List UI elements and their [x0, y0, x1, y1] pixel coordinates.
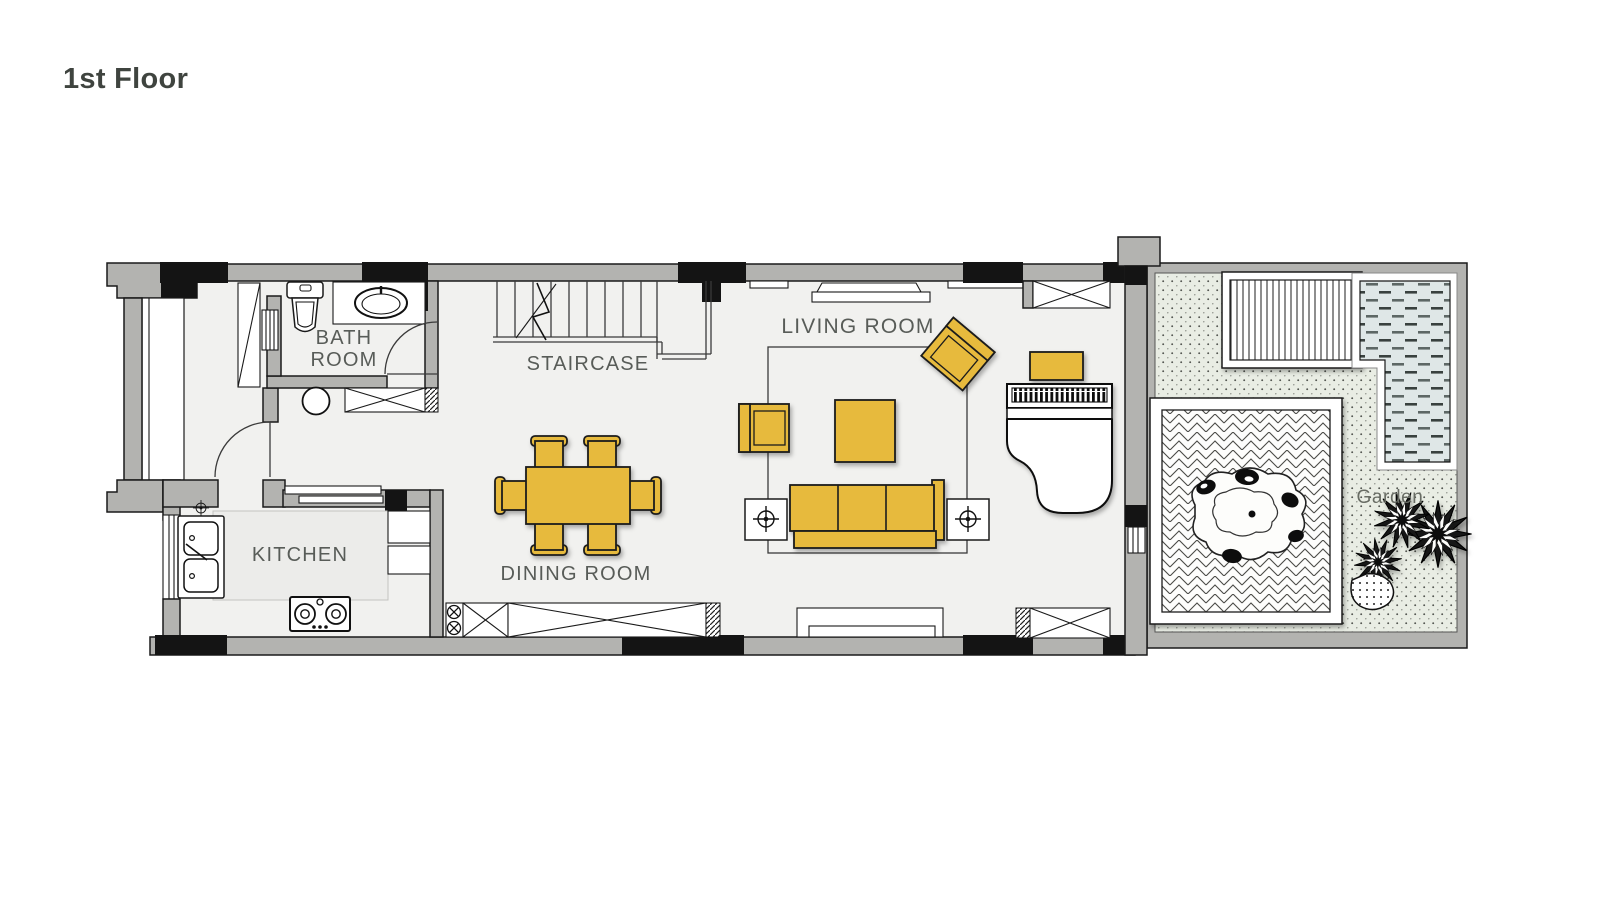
crossed-cabinet — [345, 388, 425, 412]
washer-icon — [303, 388, 330, 415]
garden-rock — [1351, 574, 1394, 610]
sofa — [790, 480, 944, 548]
side-table — [947, 499, 989, 540]
page-title: 1st Floor — [63, 63, 188, 95]
staircase-label: STAIRCASE — [527, 353, 650, 375]
west-pillar — [124, 298, 142, 480]
coffee-table — [835, 400, 895, 462]
deck — [1222, 272, 1362, 368]
bathroom-label-line1: BATH — [316, 327, 373, 349]
east-wall-cap — [1118, 237, 1160, 266]
kitchen-cabinet — [388, 511, 430, 543]
living-room-label: LIVING ROOM — [781, 315, 934, 338]
garden-gate — [1128, 527, 1145, 553]
tv-console-icon — [812, 283, 930, 302]
bathroom-south-wall — [267, 376, 387, 388]
patio — [1150, 398, 1342, 624]
floor-plan-page: 1st Floor — [0, 0, 1600, 910]
floorplan-canvas: 1st Floor — [0, 0, 1600, 910]
sideboard — [446, 603, 720, 637]
garden-label: Garden — [1357, 487, 1424, 508]
side-table — [745, 499, 787, 540]
dining-table — [526, 467, 630, 524]
dining-room-label: DINING ROOM — [501, 563, 652, 585]
west-wall-cap-bottom — [107, 480, 163, 512]
kitchen-label: KITCHEN — [252, 544, 348, 566]
piano-bench — [1030, 352, 1083, 380]
living-window — [750, 281, 788, 288]
crossed-cabinet — [1016, 608, 1110, 638]
crossed-cabinet — [1023, 281, 1110, 308]
kitchen-cabinet — [388, 546, 430, 574]
east-wall — [1125, 266, 1147, 655]
window-seat — [797, 608, 943, 637]
sink-icon — [333, 282, 425, 324]
wall-hatch — [425, 388, 438, 412]
pass-shelf — [285, 486, 381, 494]
west-window — [142, 298, 184, 480]
armchair — [739, 404, 789, 452]
stove-icon — [290, 597, 350, 631]
bathroom-label-line2: ROOM — [310, 349, 377, 371]
garden: Garden — [1147, 263, 1472, 648]
pass-shelf — [299, 496, 383, 503]
